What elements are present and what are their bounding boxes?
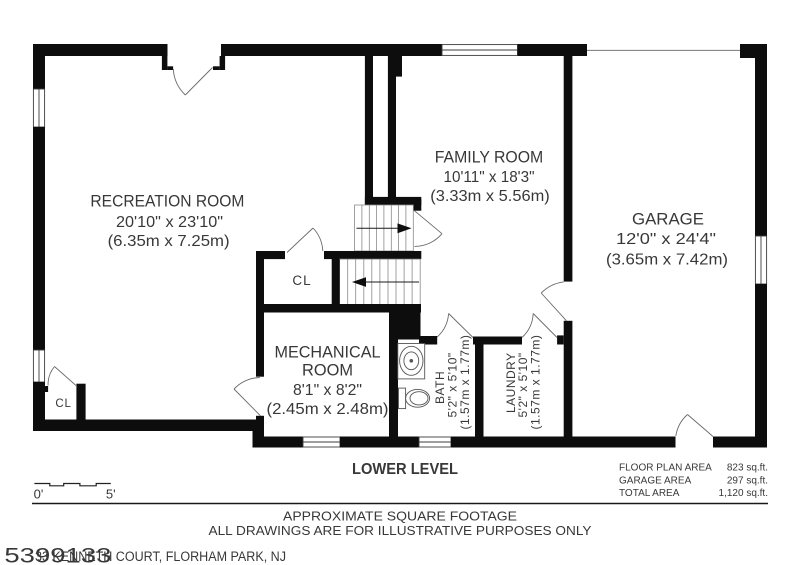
svg-text:RECREATION ROOM: RECREATION ROOM xyxy=(90,193,244,211)
svg-text:LOWER LEVEL: LOWER LEVEL xyxy=(352,461,458,478)
svg-text:297 sq.ft.: 297 sq.ft. xyxy=(727,476,768,487)
svg-text:5399133: 5399133 xyxy=(4,545,111,565)
svg-text:ALL DRAWINGS ARE FOR ILLUSTRAT: ALL DRAWINGS ARE FOR ILLUSTRATIVE PURPOS… xyxy=(209,524,593,538)
svg-text:12'0" x 24'4": 12'0" x 24'4" xyxy=(616,231,716,248)
svg-text:GARAGE: GARAGE xyxy=(632,211,704,229)
svg-text:10'11" x 18'3": 10'11" x 18'3" xyxy=(444,169,535,186)
svg-text:CL: CL xyxy=(55,398,71,410)
svg-text:20'10" x 23'10": 20'10" x 23'10" xyxy=(116,214,223,231)
svg-text:823 sq.ft.: 823 sq.ft. xyxy=(727,463,768,474)
svg-text:TOTAL AREA: TOTAL AREA xyxy=(619,488,680,499)
svg-text:APPROXIMATE SQUARE FOOTAGE: APPROXIMATE SQUARE FOOTAGE xyxy=(283,510,517,524)
svg-text:5': 5' xyxy=(106,487,116,502)
svg-text:0': 0' xyxy=(34,487,44,502)
svg-text:ROOM: ROOM xyxy=(302,362,353,380)
svg-text:FLOOR PLAN AREA: FLOOR PLAN AREA xyxy=(619,463,712,474)
svg-text:(1.57m x 1.77m): (1.57m x 1.77m) xyxy=(458,335,472,430)
svg-text:(1.57m x 1.77m): (1.57m x 1.77m) xyxy=(529,335,543,430)
svg-text:GARAGE AREA: GARAGE AREA xyxy=(619,476,692,487)
svg-text:1,120 sq.ft.: 1,120 sq.ft. xyxy=(719,488,768,499)
svg-text:(6.35m x 7.25m): (6.35m x 7.25m) xyxy=(108,233,230,250)
svg-text:(2.45m x 2.48m): (2.45m x 2.48m) xyxy=(267,401,389,418)
svg-text:FAMILY ROOM: FAMILY ROOM xyxy=(435,148,544,166)
svg-text:(3.33m x 5.56m): (3.33m x 5.56m) xyxy=(430,188,550,205)
svg-text:(3.65m x 7.42m): (3.65m x 7.42m) xyxy=(606,251,728,268)
svg-text:CL: CL xyxy=(292,273,311,288)
svg-text:8'1" x 8'2": 8'1" x 8'2" xyxy=(293,382,362,399)
svg-text:MECHANICAL: MECHANICAL xyxy=(275,343,381,361)
